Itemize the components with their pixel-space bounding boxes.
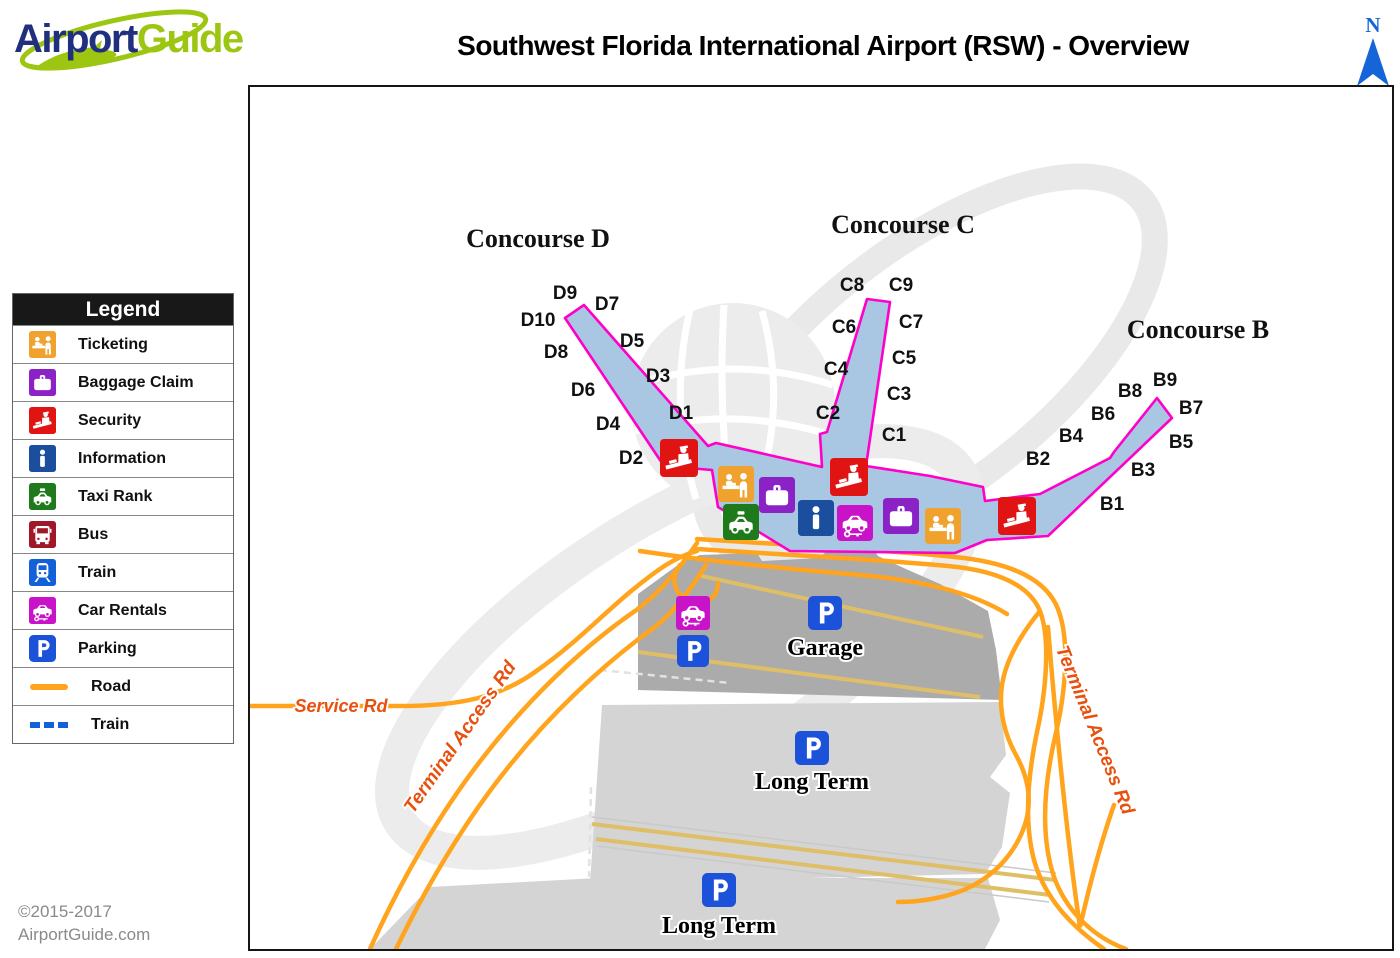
gate-label: D6 [571,380,595,401]
ticketing-icon [29,331,56,358]
gate-label: D7 [595,294,619,315]
legend-label: Train [91,716,129,734]
long-term-label: Long Term [662,913,776,939]
legend-panel: Legend Ticketing Baggage Claim Security … [12,293,234,744]
gate-label: D10 [521,310,556,331]
concourse-d-label: Concourse D [466,224,610,253]
taxi-rank-icon [29,483,56,510]
parking-icon [808,596,842,630]
bus-icon [29,521,56,548]
legend-row-ticketing: Ticketing [13,325,233,363]
north-arrow-icon [1357,38,1389,86]
parking-icon [702,873,736,907]
copyright: ©2015-2017 AirportGuide.com [18,900,150,946]
security-icon [29,407,56,434]
gate-label: B1 [1100,494,1125,515]
car-rentals-icon [837,505,873,541]
gate-label: B8 [1118,381,1142,402]
legend-label: Parking [78,640,137,658]
baggage-claim-icon [883,498,919,534]
page-title: Southwest Florida International Airport … [250,30,1396,62]
gate-label: D9 [553,283,577,304]
baggage-claim-icon [29,369,56,396]
ticketing-icon [925,508,961,544]
copyright-site: AirportGuide.com [18,923,150,946]
baggage-claim-icon [759,477,795,513]
legend-label: Ticketing [78,336,148,354]
train-icon [29,559,56,586]
legend-label: Baggage Claim [78,374,194,392]
service-rd-label: Service Rd [294,696,388,716]
gate-label: D2 [619,448,643,469]
legend-label: Road [91,678,131,696]
gate-label: C1 [882,425,907,446]
legend-row-baggage-claim: Baggage Claim [13,363,233,401]
gate-label: C9 [889,275,913,296]
gate-label: C2 [816,403,840,424]
car-rentals-icon [29,597,56,624]
logo-guide: Guide [137,17,243,61]
legend-label: Information [78,450,166,468]
gate-label: B3 [1131,460,1155,481]
gate-label: D8 [544,342,568,363]
security-icon [830,458,868,496]
logo-text: AirportGuide [14,17,243,61]
gate-label: B2 [1026,449,1050,470]
gate-label: C8 [840,275,864,296]
gate-label: C5 [892,348,917,369]
garage-label: Garage [787,635,863,661]
car-rentals-icon [676,596,710,630]
gate-label: D4 [596,414,621,435]
concourse-b-label: Concourse B [1127,315,1269,344]
legend-row-security: Security [13,401,233,439]
logo-airport: Airport [14,17,138,61]
north-arrow: N [1348,12,1398,92]
gate-label: D1 [669,403,694,424]
airport-map: Concourse D Concourse C Concourse B D9 D… [250,87,1392,949]
gate-label: B6 [1091,404,1115,425]
legend-row-train: Train [13,553,233,591]
legend-row-road: Road [13,667,233,705]
legend-label: Security [78,412,141,430]
legend-row-information: Information [13,439,233,477]
legend-label: Car Rentals [78,602,167,620]
gate-label: C7 [899,312,923,333]
legend-label: Taxi Rank [78,488,152,506]
legend-row-train-line: Train [13,705,233,743]
parking-icon [29,635,56,662]
gate-label: B9 [1153,370,1177,391]
legend-row-parking: Parking [13,629,233,667]
gate-label: D3 [646,366,670,387]
gate-label: C4 [824,359,849,380]
ticketing-icon [718,466,754,502]
gate-label: B5 [1169,432,1194,453]
north-label: N [1365,13,1380,37]
road-line-swatch [29,673,69,700]
airportguide-logo: AirportGuide [6,4,246,76]
train-dashed-line-swatch [29,711,69,738]
legend-row-car-rentals: Car Rentals [13,591,233,629]
concourse-c-label: Concourse C [831,210,975,239]
legend-header: Legend [13,294,233,325]
legend-label: Bus [78,526,108,544]
gate-label: B4 [1059,426,1084,447]
security-icon [660,439,698,477]
taxi-rank-icon [723,504,759,540]
gate-label: B7 [1179,398,1203,419]
gate-label: D5 [620,331,645,352]
parking-icon [795,731,829,765]
gate-label: C3 [887,384,911,405]
information-icon [798,500,834,536]
long-term-label: Long Term [755,769,869,795]
legend-label: Train [78,564,116,582]
legend-row-bus: Bus [13,515,233,553]
map-frame: Concourse D Concourse C Concourse B D9 D… [248,85,1394,951]
copyright-years: ©2015-2017 [18,900,150,923]
parking-icon [677,635,709,667]
legend-row-taxi-rank: Taxi Rank [13,477,233,515]
information-icon [29,445,56,472]
gate-label: C6 [832,317,856,338]
security-icon [998,497,1036,535]
